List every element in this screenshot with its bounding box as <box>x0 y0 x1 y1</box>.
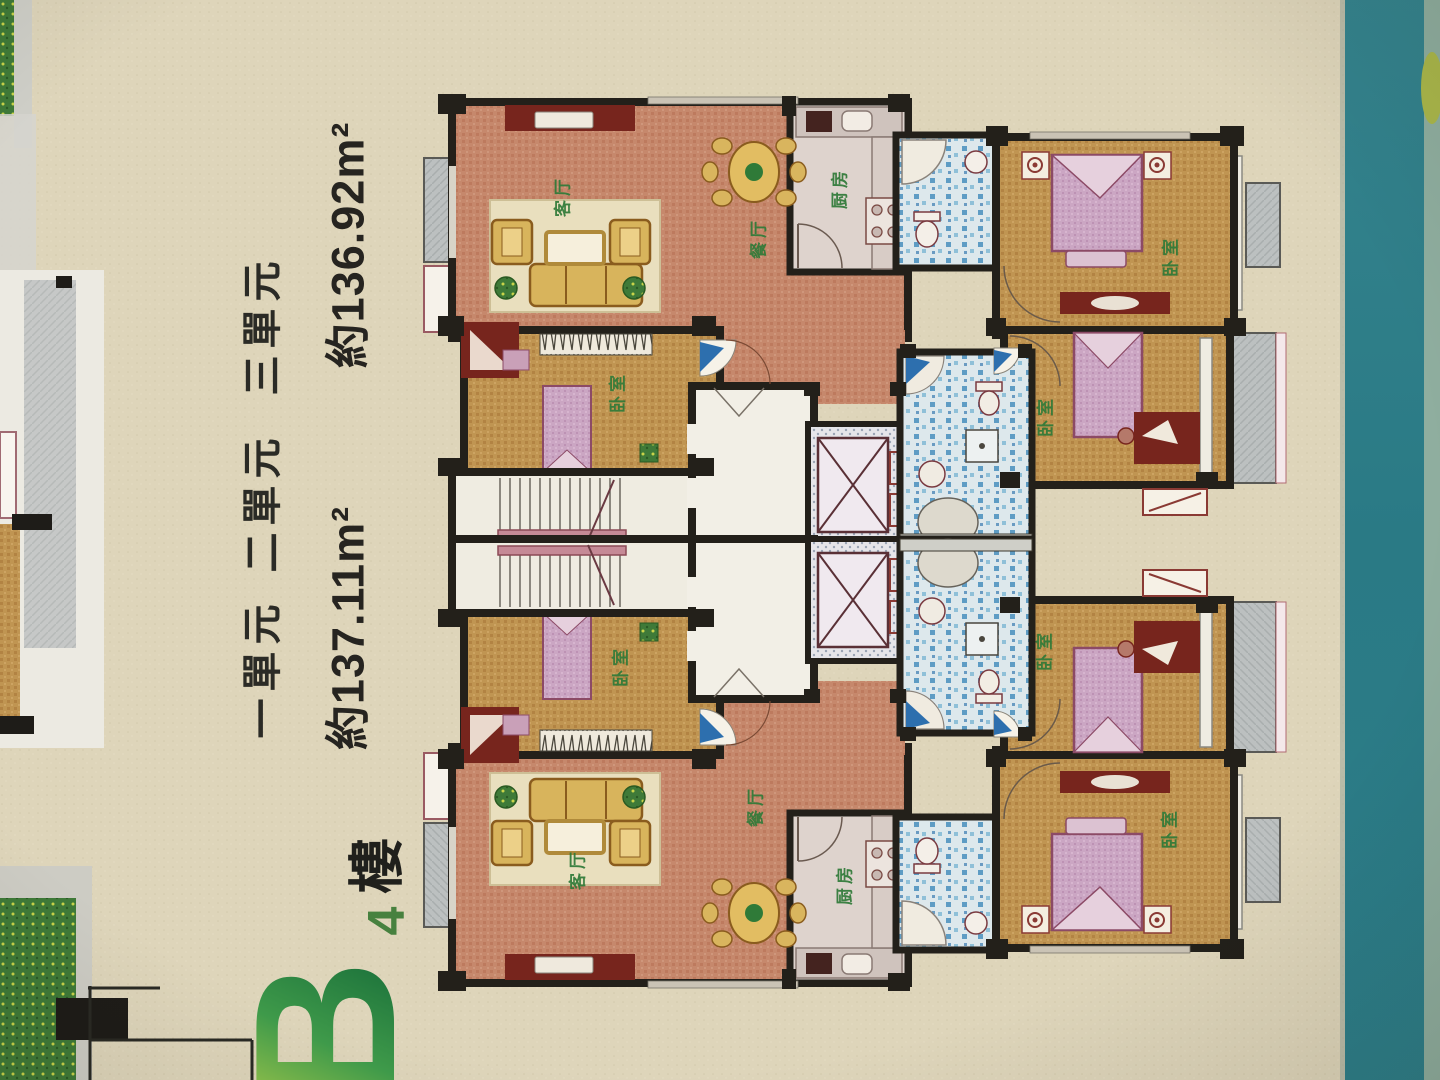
room-label-bedroom-lower-mid-right: 卧室 <box>1031 629 1056 671</box>
room-label-dining-top: 餐厅 <box>745 217 770 259</box>
photo-vignette <box>0 0 1440 1080</box>
brochure-photo: 一單元 二單元 三單元 約137.11m² 約136.92m² 樓 4 B 客厅… <box>0 0 1440 1080</box>
floor-number: 4 <box>357 907 417 936</box>
floor-word: 樓 <box>333 838 414 894</box>
room-label-bedroom-bottom-right: 卧室 <box>1156 807 1181 849</box>
room-label-dining-bottom: 餐厅 <box>742 785 767 827</box>
room-label-bedroom-lower-left: 卧室 <box>607 645 632 687</box>
room-label-kitchen-top: 厨房 <box>826 167 851 209</box>
room-label-living-top: 客厅 <box>549 175 574 217</box>
unit-label-2: 二單元 <box>230 432 288 573</box>
unit-label-1: 一單元 <box>230 598 288 739</box>
room-label-living-bottom: 客厅 <box>564 848 589 890</box>
room-label-bedroom-mid-left: 卧室 <box>604 371 629 413</box>
area-label-unit-3: 約136.92m² <box>312 122 377 369</box>
room-label-bedroom-mid-right: 卧室 <box>1032 395 1057 437</box>
floor-plan-drawing <box>0 0 1440 1080</box>
room-label-bedroom-top-right: 卧室 <box>1157 235 1182 277</box>
area-label-unit-1-2: 約137.11m² <box>312 506 377 750</box>
unit-label-3: 三單元 <box>230 255 288 396</box>
room-label-kitchen-bottom: 厨房 <box>831 863 856 905</box>
block-letter: B <box>226 960 426 1080</box>
